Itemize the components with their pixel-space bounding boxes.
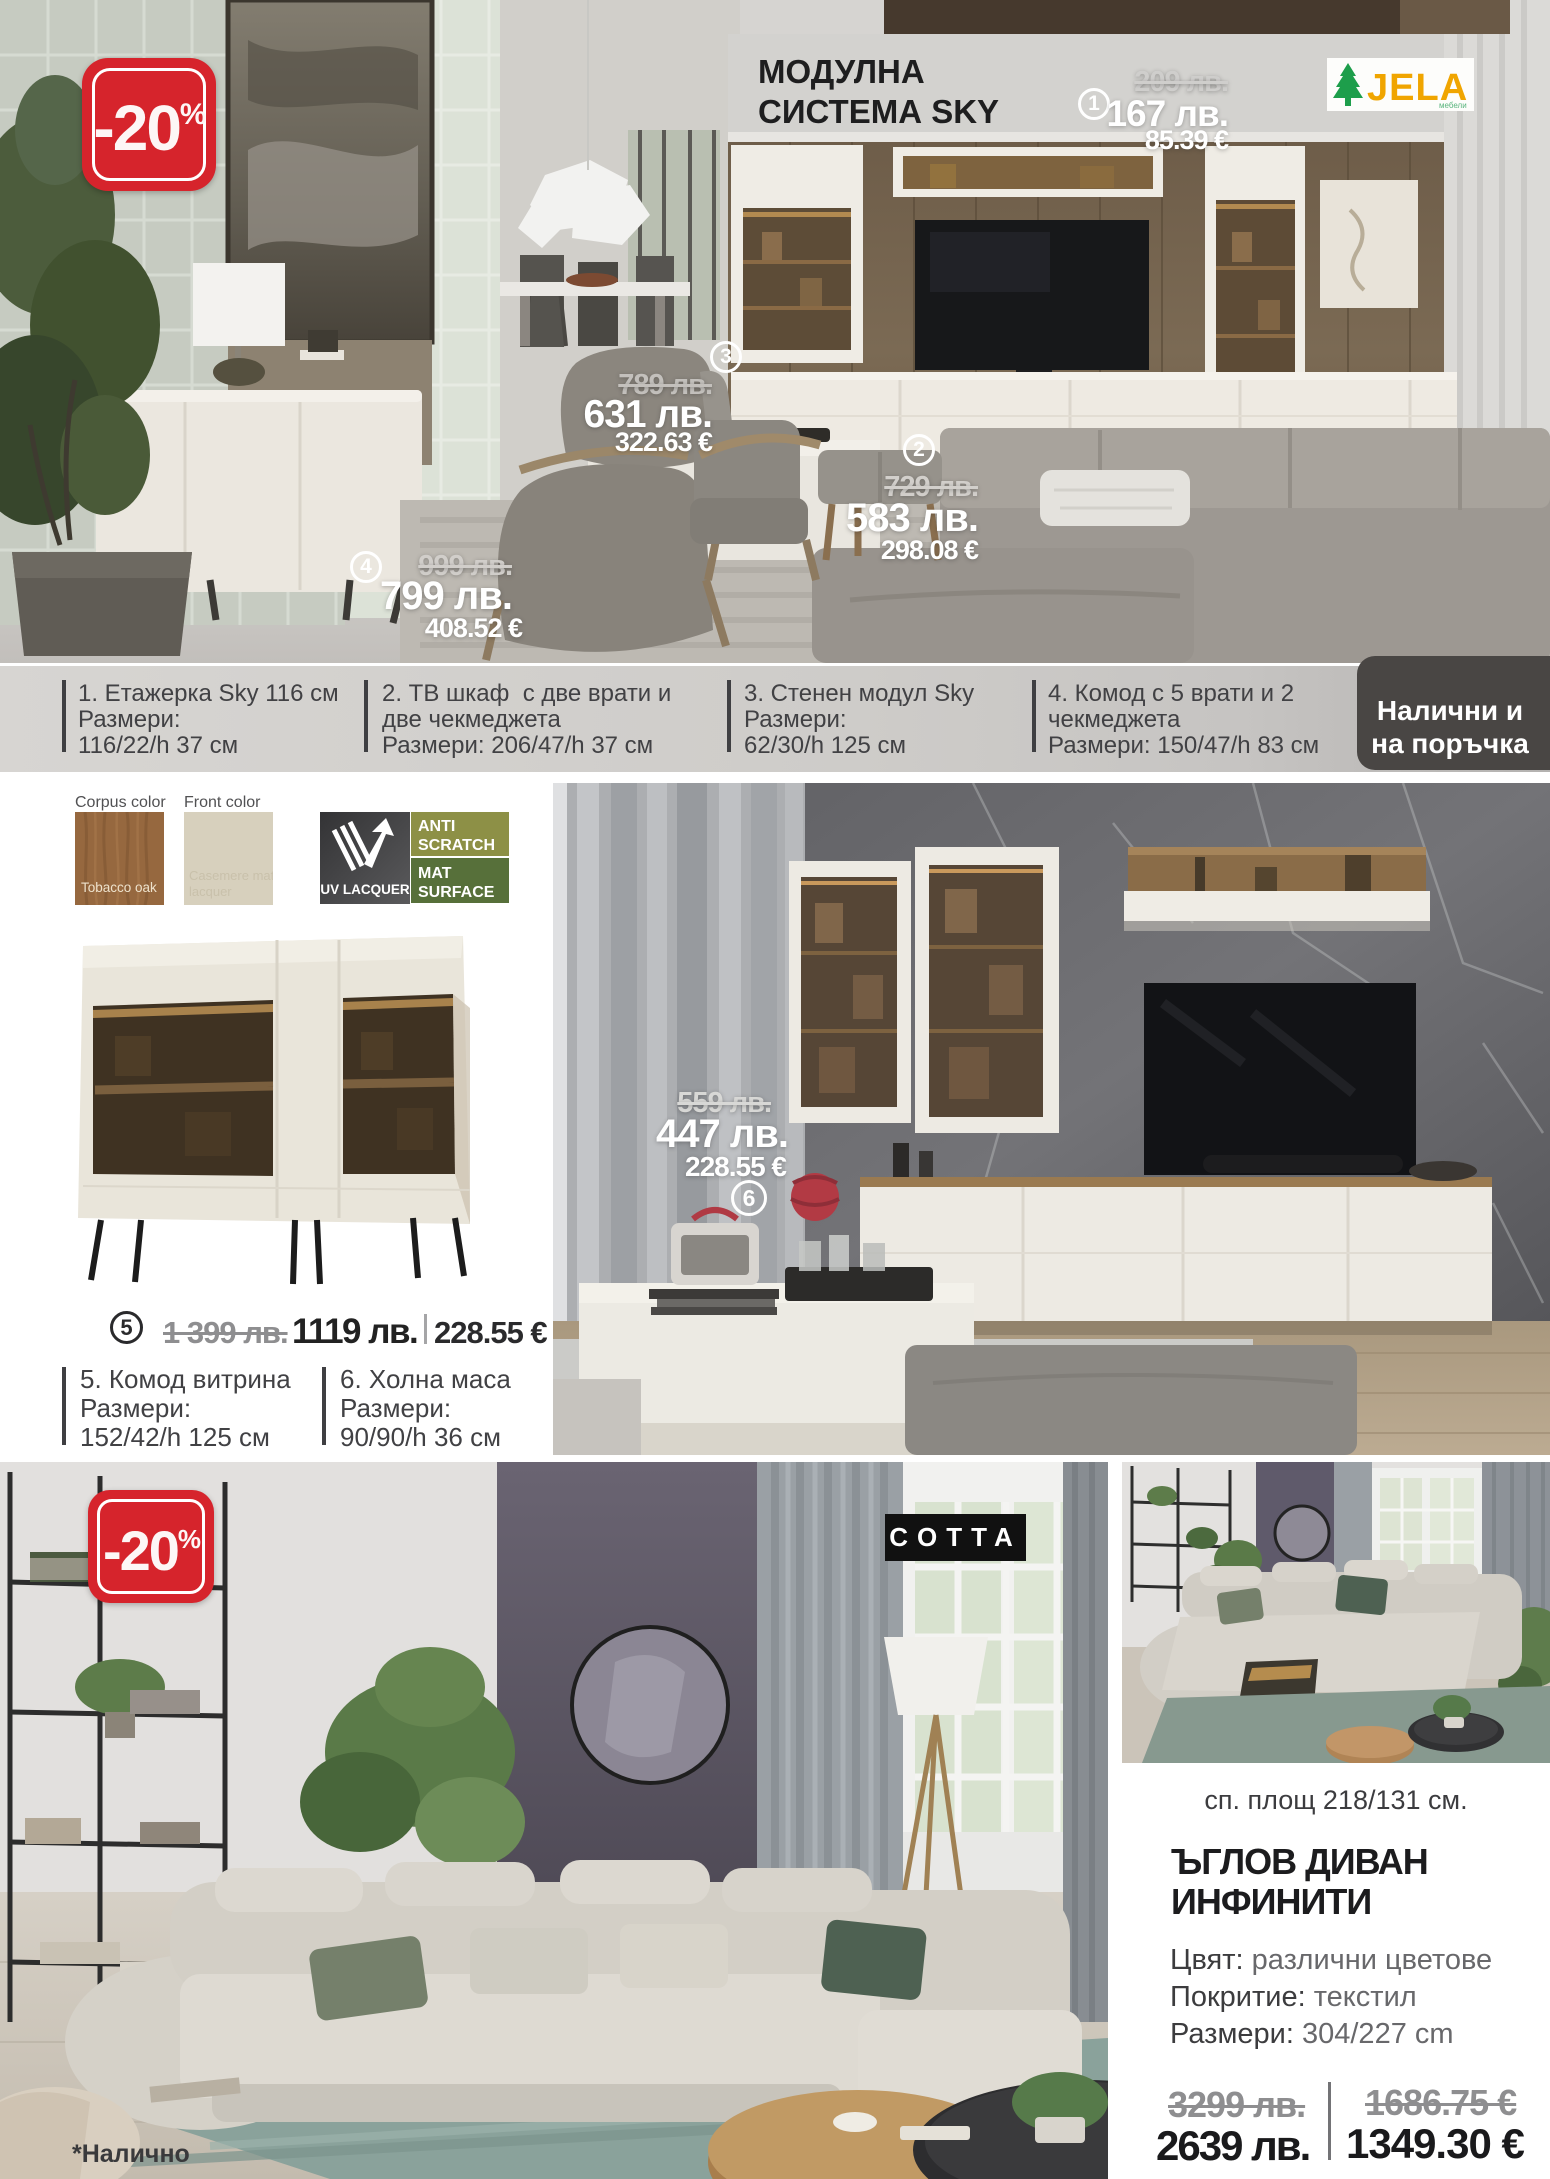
svg-text:Casemere mat: Casemere mat (189, 868, 273, 883)
svg-text:UV LACQUER: UV LACQUER (320, 882, 410, 897)
svg-text:Tobacco oak: Tobacco oak (81, 880, 157, 895)
svg-text:lacquer: lacquer (189, 884, 232, 899)
svg-text:мебели: мебели (1439, 101, 1467, 110)
